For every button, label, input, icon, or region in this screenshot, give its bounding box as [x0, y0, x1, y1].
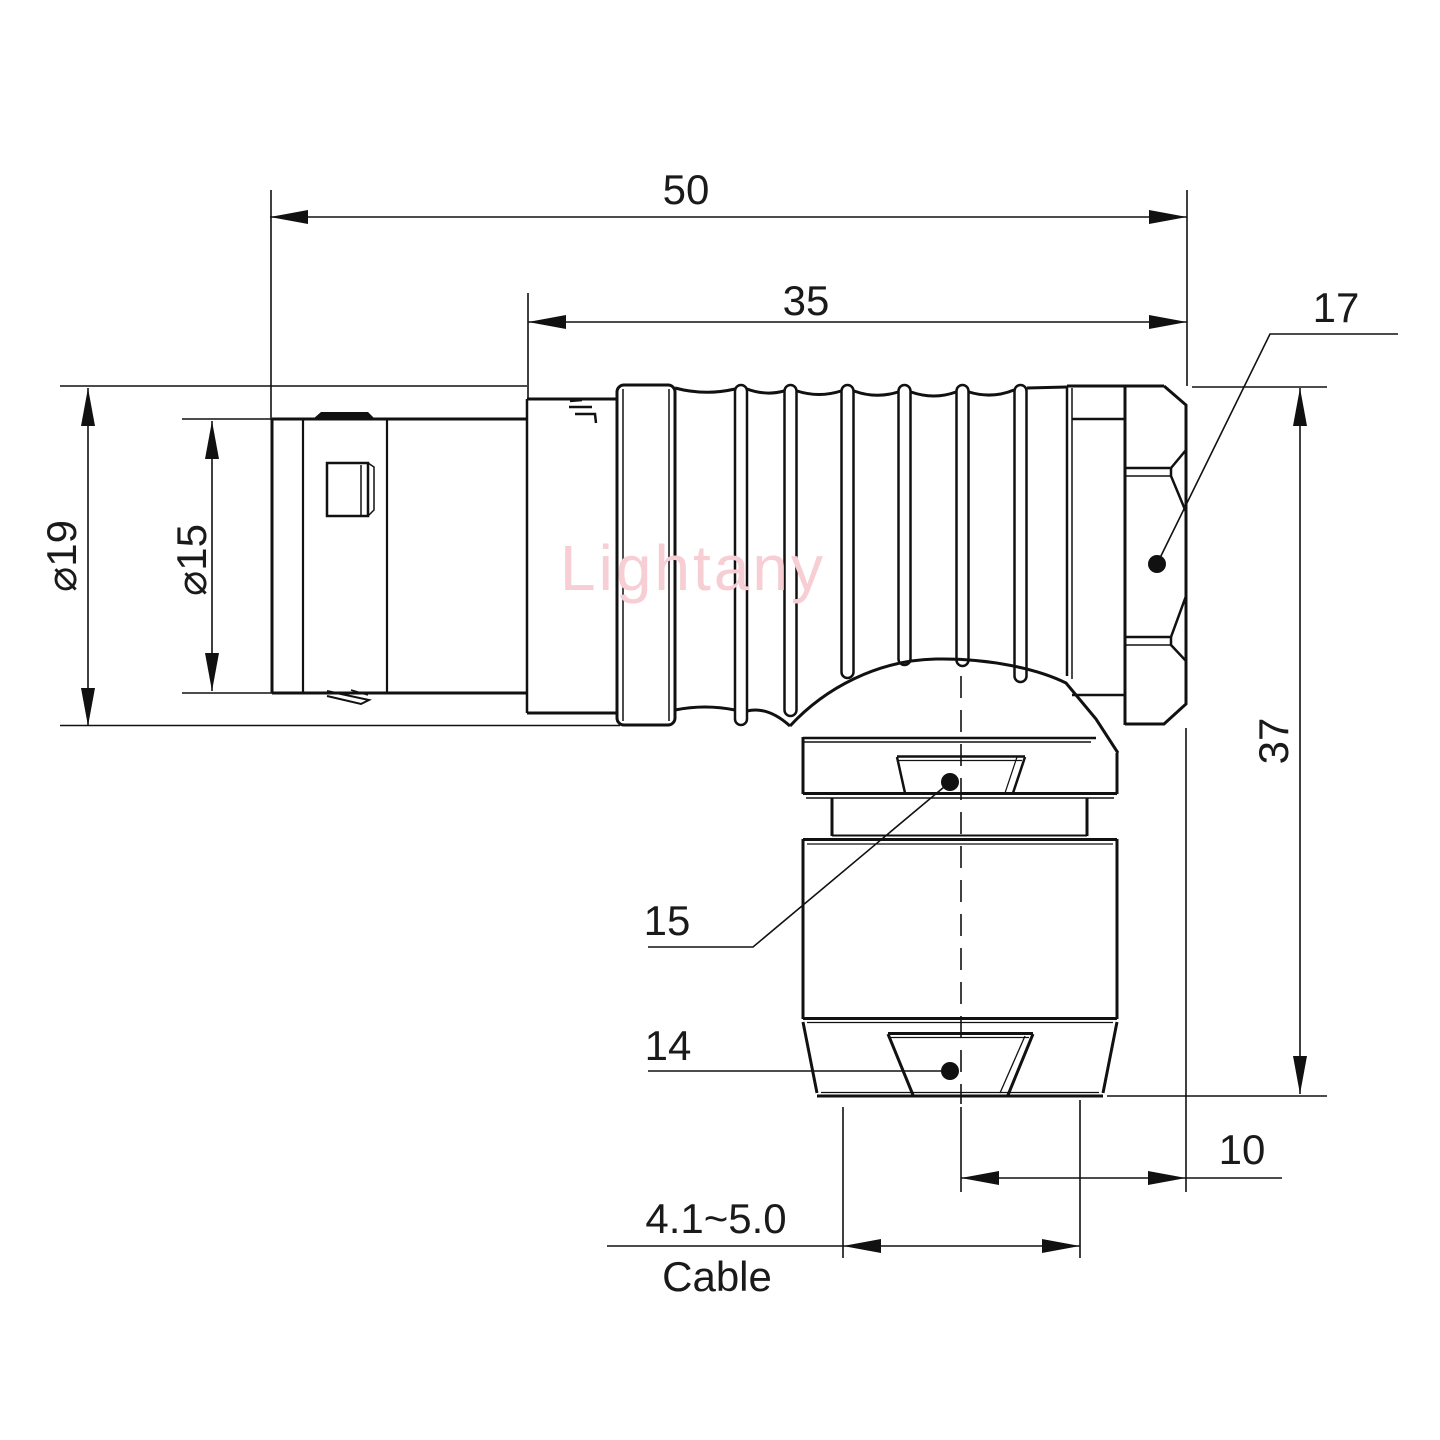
- rib: [899, 385, 911, 665]
- cable-range-label: 4.1~5.0: [645, 1195, 786, 1242]
- overall-length-label: 50: [663, 166, 710, 213]
- top-tab: [313, 412, 375, 419]
- dimension-body-length: 35: [528, 277, 1187, 399]
- cable-word-label: Cable: [662, 1253, 772, 1300]
- dimension-cable-range: 4.1~5.0 Cable: [607, 1100, 1080, 1300]
- dimension-cap-flat: 14: [645, 1022, 959, 1080]
- front-coupling-body: [272, 412, 527, 704]
- connector-side-view: [272, 385, 1186, 1104]
- cap-flat-label: 14: [645, 1022, 692, 1069]
- overall-height-label: 37: [1250, 718, 1297, 765]
- rib: [1015, 385, 1027, 682]
- connector-elbow-drawing: 50 35 ⌀19 ⌀15 17 37: [0, 0, 1440, 1440]
- watermark-text: Lightany: [560, 532, 826, 604]
- dimension-collar-flat: 15: [644, 773, 959, 947]
- dimension-overall-height: 37: [1107, 387, 1327, 1096]
- dimension-front-diameter: ⌀15: [168, 419, 272, 693]
- exit-offset-label: 10: [1219, 1126, 1266, 1173]
- dimension-overall-length: 50: [270, 166, 1187, 419]
- elbow-cable-exit: [790, 659, 1118, 1104]
- rib: [842, 385, 854, 678]
- outer-diameter-label: ⌀19: [38, 520, 85, 592]
- dimension-outer-diameter: ⌀19: [38, 386, 620, 726]
- hex-flat-label: 17: [1313, 284, 1360, 331]
- front-diameter-label: ⌀15: [168, 524, 215, 596]
- technical-drawing-page: 50 35 ⌀19 ⌀15 17 37: [0, 0, 1440, 1440]
- rib: [957, 385, 969, 666]
- hex-nut-end: [1067, 386, 1186, 725]
- body-length-label: 35: [783, 277, 830, 324]
- slot-window: [327, 463, 374, 516]
- collar-flat-label: 15: [644, 897, 691, 944]
- molded-brand-mark: [569, 400, 596, 423]
